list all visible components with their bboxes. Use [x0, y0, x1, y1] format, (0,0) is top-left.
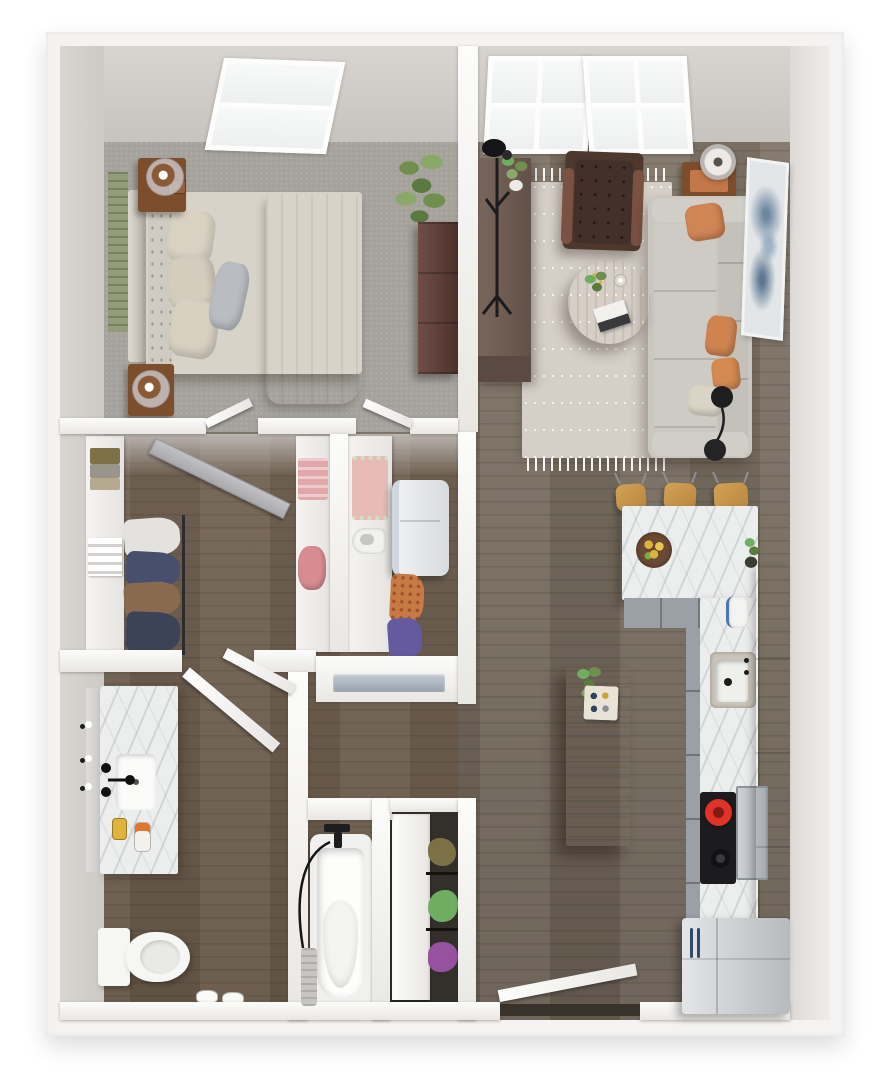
wall-closet-south-1: [60, 650, 182, 672]
floor-plan-render: [0, 0, 887, 1080]
side-table-lamp: [700, 144, 736, 180]
wall-bedroom-south-1: [60, 418, 206, 434]
bed-headboard: [128, 190, 146, 362]
wall-art: [741, 157, 789, 341]
linen-shelf-line: [426, 872, 458, 875]
iron-handle: [360, 534, 374, 545]
black-pan: [711, 849, 730, 868]
island-tray: [583, 685, 618, 720]
table-lamp: [146, 158, 184, 196]
linen-closet-door: [392, 814, 430, 1000]
shelf-stack: [88, 538, 122, 576]
rug-fringe-bottom: [527, 458, 667, 471]
wall-sconce: [80, 758, 85, 763]
folded-pink-clothes: [298, 458, 328, 500]
sink-knob: [744, 670, 749, 675]
bedroom-skylight-window: [205, 58, 346, 154]
tub-faucet: [324, 824, 350, 832]
wall-hall-east-lower: [458, 798, 476, 1020]
tub-faucet-spout: [334, 832, 342, 848]
toilet-seat: [140, 940, 180, 974]
wall-south-left: [60, 1002, 500, 1020]
red-pot: [705, 799, 732, 826]
shelf-item-olive: [428, 838, 456, 866]
wall-ac-vent: [333, 674, 445, 692]
pink-blanket: [352, 456, 388, 520]
sofa-pillow-cream: [687, 384, 725, 417]
bedroom-wall-panel: [108, 172, 128, 332]
sofa-pillow-orange: [683, 201, 726, 243]
wall-bedroom-south-3: [410, 418, 458, 434]
sofa-armrest-bottom: [652, 432, 748, 456]
folded-clothes-stack: [90, 448, 120, 464]
wall-bedroom-living-divider: [458, 46, 478, 432]
folded-clothes-stack: [90, 478, 120, 490]
hanging-clothes-orange: [389, 573, 425, 623]
living-window-left: [483, 56, 592, 154]
kitchen-base-cabinets-front: [624, 598, 700, 628]
wall-closet-divider: [330, 434, 348, 652]
media-console-base: [477, 356, 531, 382]
kitchen-cabinets-side: [686, 628, 700, 962]
table-lamp: [132, 370, 170, 408]
coffee-table-candle: [614, 274, 627, 287]
hanging-clothes: [125, 611, 180, 653]
folded-clothes-stack: [90, 464, 120, 478]
console-plant: [494, 148, 534, 200]
kitchen-sink-basin: [716, 660, 748, 702]
armchair-cushion: [573, 159, 634, 245]
refrigerator-handle: [690, 928, 693, 958]
soap-bottle-orange: [134, 822, 151, 852]
refrigerator-seam: [716, 918, 718, 1014]
soap-bottle-yellow: [112, 818, 127, 840]
bed-blanket: [266, 194, 362, 404]
sofa-pillow-orange: [704, 314, 739, 357]
tub-towel: [301, 948, 317, 1006]
closet-top-face: [86, 434, 458, 476]
wall-tub-linen-divider: [372, 798, 390, 1020]
sink-faucet: [724, 678, 732, 686]
fruit-bowl: [636, 532, 672, 568]
wall-sconce: [80, 786, 85, 791]
tall-white-cabinets: [756, 566, 790, 962]
washer-seam: [400, 520, 440, 522]
washer: [392, 480, 449, 576]
linen-shelf-line: [426, 928, 458, 931]
kettle: [726, 596, 749, 628]
wall-hall-east-upper: [458, 432, 476, 704]
sink-knob: [744, 658, 749, 663]
wall-bedroom-south-2: [258, 418, 356, 434]
wall-sconce: [80, 724, 85, 729]
hanging-clothes-purple: [387, 617, 424, 659]
refrigerator-seam-h: [682, 958, 790, 960]
shelf-item-green-plant: [428, 890, 458, 922]
entry-threshold: [500, 1004, 640, 1016]
sink-drain: [133, 779, 139, 785]
pink-bag: [298, 546, 326, 590]
refrigerator-handle: [697, 928, 700, 958]
living-window-right: [583, 56, 694, 154]
east-wall-face: [790, 46, 830, 1020]
coffee-table-plant: [580, 268, 614, 300]
closet-rod: [182, 515, 185, 655]
bedroom-dresser: [418, 222, 458, 374]
bedroom-potted-plant: [388, 146, 458, 234]
wall-linen-north: [390, 798, 458, 812]
